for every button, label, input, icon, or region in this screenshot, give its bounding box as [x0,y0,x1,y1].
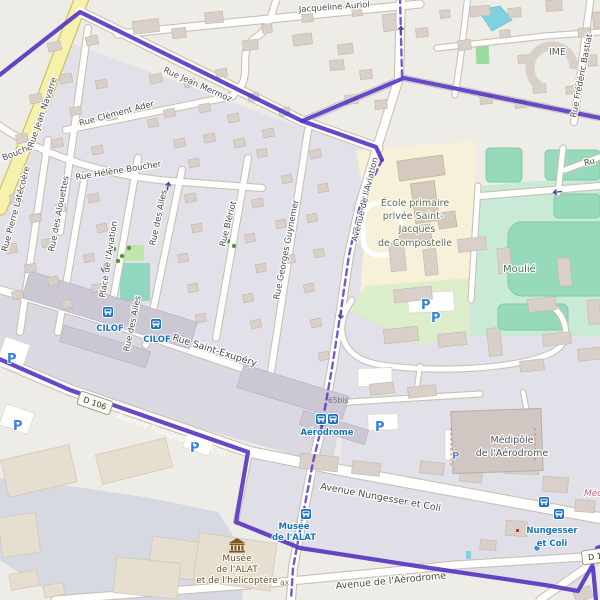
parking-icon: P [431,311,441,326]
poi-label-medipole-line2: de l'Aérodrome [476,448,549,459]
parking-icon: P [13,419,23,434]
bus-stop-label-cilof-1: CILOF [96,324,124,334]
sports-pitch-small-3 [554,194,600,218]
bus-stop-icon [103,307,114,318]
poi-label-moulie: Moulié [503,263,536,275]
parking-icon: P [7,352,17,367]
bus-stop-label-aerodrome: Aérodrome [300,427,353,438]
bus-stop-label-nungesser-line2: et Coli [537,539,568,549]
house-number-65bis: 65bis [328,396,348,405]
parking-icon: P [375,420,385,435]
map-canvas[interactable]: D 106 D 106 P P P P P P P Jacqueline Aur… [0,0,600,600]
bus-stop-label-cilof-2: CILOF [143,335,171,345]
bus-stop-icon [328,414,339,425]
bus-stop-label-nungesser-line1: Nungesser [526,526,578,536]
poi-red-dot [516,529,519,532]
poi-label-musee-line3: et de l'hélicoptère [196,575,278,586]
bus-stop-icon [539,497,550,508]
bus-stop-label-musee-line1: Musée [278,521,309,532]
poi-label-ime: IME [549,47,566,58]
poi-label-ecole-line3: Jacques [398,224,436,235]
bus-stop-icon [316,414,327,425]
sports-pitch-small-1 [486,148,522,182]
poi-label-ecole-line1: École primaire [381,197,450,209]
bus-stop-icon [151,319,162,330]
small-water [466,551,471,559]
parking-icon: P [421,298,431,313]
poi-label-musee-line1: Musée [222,553,252,564]
poi-label-medipole-line1: Médipôle [490,435,533,446]
poi-label-partial-ax: ax [280,578,290,587]
poi-label-ecole-line2: privée Saint- [383,211,444,222]
map-svg: D 106 D 106 P P P P P P P Jacqueline Aur… [0,0,600,600]
parking-icon: P [452,451,459,462]
poi-label-medipole-partial: Méd [584,488,600,499]
bus-stop-icon [301,509,312,520]
poi-label-musee-line2: de l'ALAT [216,565,258,575]
poi-label-ecole-line4: de Compostelle [378,238,452,249]
admin-boundary-line [593,568,596,600]
sports-pitch-main [508,222,600,296]
bus-stop-label-musee-line2: de l'ALAT [272,533,316,543]
bus-stop-icon [554,509,565,520]
